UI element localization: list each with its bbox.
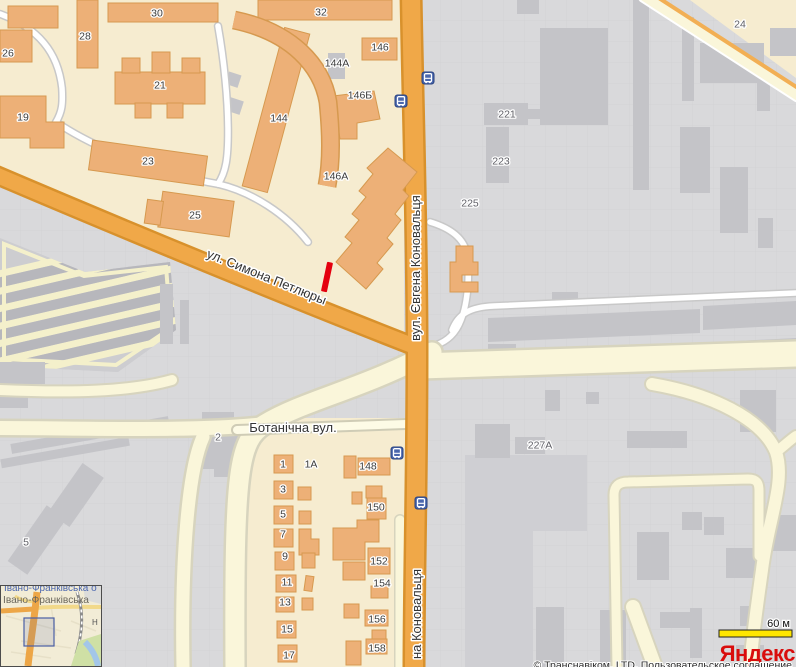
bus-stop-icon[interactable]: [415, 497, 427, 509]
building-label-9: 9: [282, 551, 288, 563]
building-label-17: 17: [283, 650, 295, 662]
minimap-inset[interactable]: Івано-Франківська о Івано-Франківська Н: [0, 585, 102, 667]
minimap-viewport[interactable]: [24, 618, 54, 646]
building-label-156: 156: [368, 614, 386, 626]
building-label-1А: 1А: [305, 459, 318, 471]
building-label-3: 3: [280, 484, 286, 496]
street-label: на Коновальця: [409, 569, 424, 659]
building-label-227А: 227А: [528, 440, 553, 452]
minimap-region-label: Івано-Франківська: [3, 595, 89, 606]
building-label-146А: 146А: [324, 171, 349, 183]
minimap-region-label-cut: Івано-Франківська о: [4, 586, 97, 594]
building-label-5: 5: [280, 509, 286, 521]
building-label-148: 148: [359, 461, 377, 473]
building-label-24: 24: [734, 19, 746, 31]
building-label-11: 11: [282, 577, 293, 589]
map-canvas[interactable]: 30322826146144А21146Б1914423146А25221223…: [0, 0, 796, 667]
building-label-144: 144: [270, 113, 288, 125]
building-label-1: 1: [280, 459, 286, 471]
building-label-154: 154: [373, 578, 391, 590]
building-label-152: 152: [370, 556, 388, 568]
building-label-7: 7: [280, 529, 286, 541]
building-label-25: 25: [189, 210, 201, 222]
building-label-223: 223: [492, 156, 510, 168]
building-label-32: 32: [315, 7, 327, 19]
building-label-225: 225: [461, 198, 479, 210]
building-label-146: 146: [371, 42, 389, 54]
building-label-146Б: 146Б: [348, 90, 373, 102]
building-label-30: 30: [151, 8, 163, 20]
map-root: 30322826146144А21146Б1914423146А25221223…: [0, 0, 796, 667]
scale-label: 60 м: [767, 618, 790, 630]
building-label-15: 15: [281, 624, 293, 636]
minimap-station-letter: Н: [92, 618, 98, 627]
building-label-13: 13: [279, 597, 291, 609]
building-label-28: 28: [79, 31, 91, 43]
bus-stop-icon[interactable]: [395, 95, 407, 107]
building-label-144А: 144А: [325, 58, 350, 70]
building-label-19: 19: [17, 112, 29, 124]
street-label: вул. Євгена Коновальця: [408, 195, 423, 341]
street-label: Ботанічна вул.: [249, 420, 336, 435]
building-label-150: 150: [367, 502, 385, 514]
building-label-21: 21: [154, 80, 166, 92]
building-label-5: 5: [23, 537, 29, 549]
building-label-23: 23: [142, 156, 154, 168]
building-label-158: 158: [368, 643, 386, 655]
bus-stop-icon[interactable]: [422, 72, 434, 84]
scale-bar: [719, 630, 792, 637]
building-label-26: 26: [2, 48, 14, 60]
building-label-2: 2: [215, 432, 221, 444]
copyright-link[interactable]: © Транснавіком, LTD, Пользовательское со…: [534, 660, 793, 667]
building-label-221: 221: [498, 109, 516, 121]
bus-stop-icon[interactable]: [391, 447, 403, 459]
